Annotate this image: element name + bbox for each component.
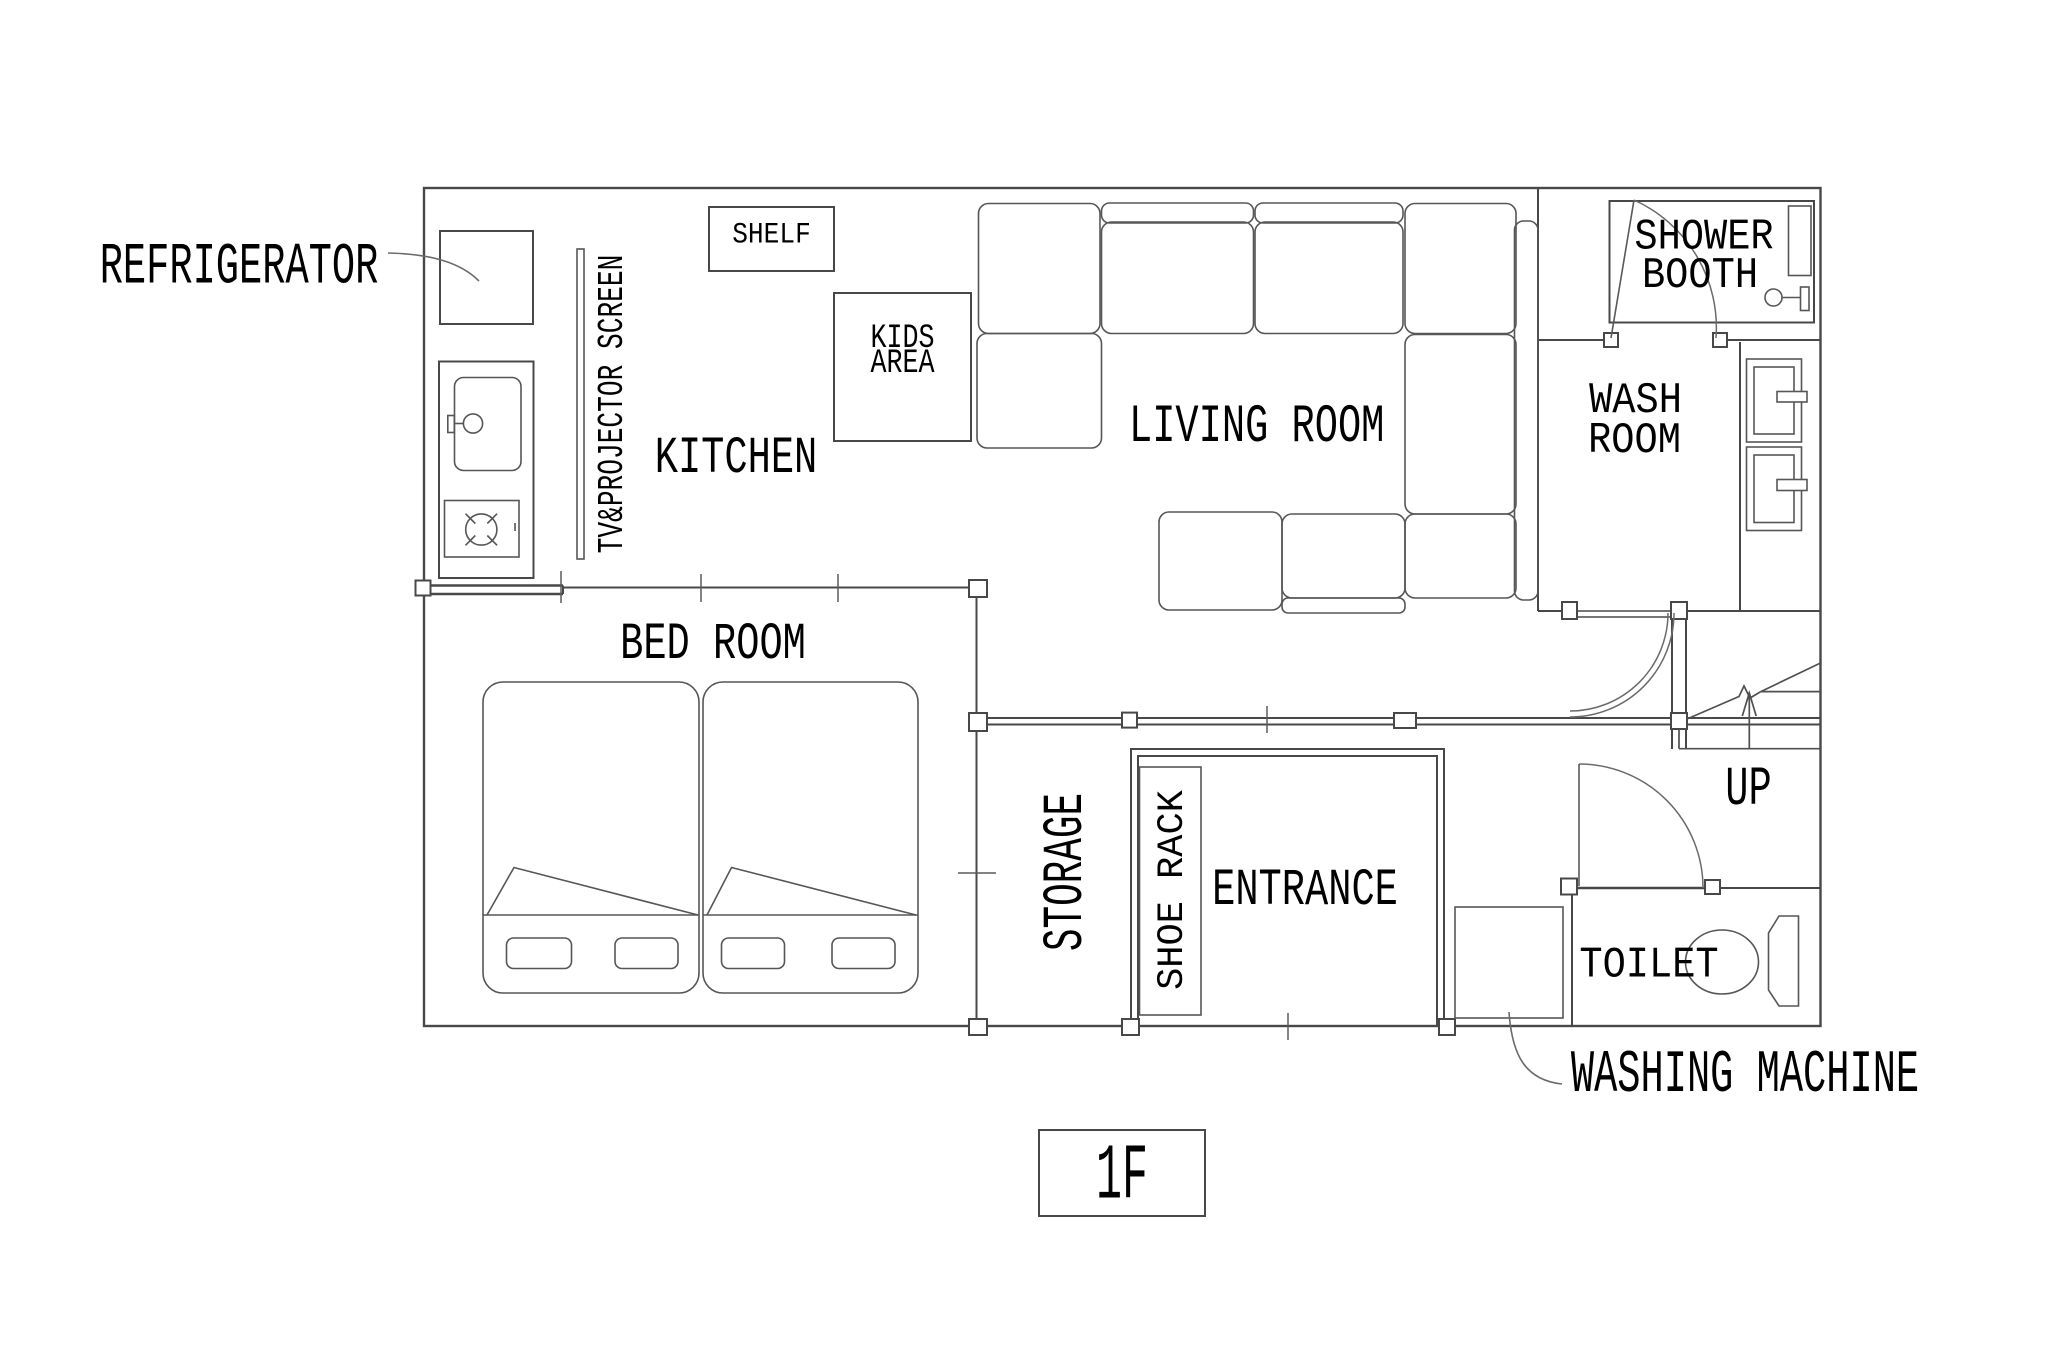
svg-text:ENTRANCE: ENTRANCE <box>1212 861 1398 920</box>
svg-text:BED ROOM: BED ROOM <box>620 615 806 674</box>
svg-text:LIVING ROOM: LIVING ROOM <box>1129 397 1384 458</box>
svg-text:SHELF: SHELF <box>732 219 811 252</box>
svg-text:REFRIGERATOR: REFRIGERATOR <box>100 234 379 300</box>
svg-text:1F: 1F <box>1096 1133 1148 1222</box>
svg-text:STORAGE: STORAGE <box>1035 793 1099 951</box>
svg-text:KITCHEN: KITCHEN <box>655 429 818 488</box>
svg-text:AREA: AREA <box>870 345 935 383</box>
svg-text:SHOE RACK: SHOE RACK <box>1152 789 1194 990</box>
svg-text:ROOM: ROOM <box>1588 417 1681 466</box>
svg-text:UP: UP <box>1725 760 1771 821</box>
svg-text:TV&PROJECTOR SCREEN: TV&PROJECTOR SCREEN <box>592 255 633 554</box>
svg-text:WASHING MACHINE: WASHING MACHINE <box>1571 1042 1919 1110</box>
svg-text:TOILET: TOILET <box>1579 942 1718 991</box>
svg-text:BOOTH: BOOTH <box>1642 252 1758 301</box>
